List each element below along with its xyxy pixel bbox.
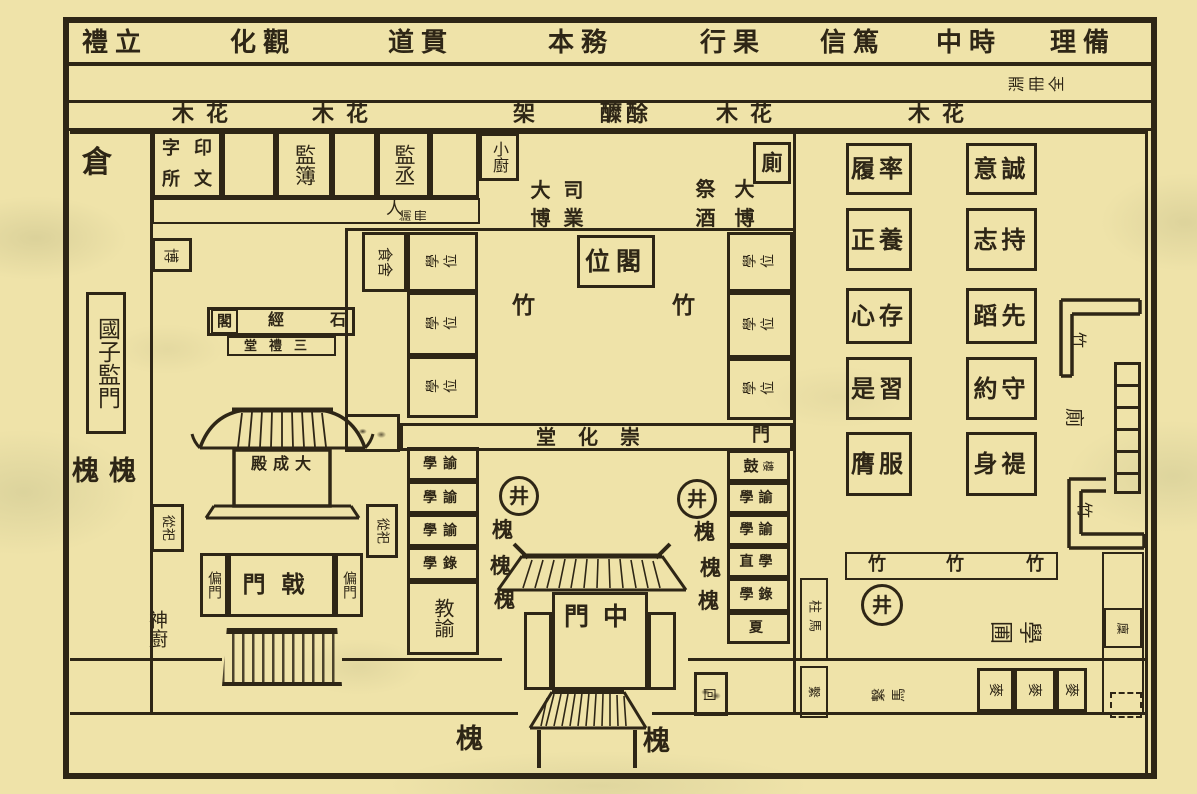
stone-classics-char: 閣	[217, 314, 232, 329]
stone-classics-char: 石	[330, 312, 346, 328]
staff-east-box: 學錄	[727, 578, 790, 612]
middle-gate-wing-east	[648, 612, 676, 690]
south-gate-post-west	[537, 730, 541, 768]
east-room-label: 學位	[742, 382, 778, 396]
assistant-label: 監丞	[393, 144, 414, 186]
west-room-box: 學位	[407, 292, 478, 356]
garden-plot-label: 學圃	[985, 618, 1043, 641]
director-char: 業	[564, 208, 584, 228]
flower-label: 木花	[908, 104, 976, 126]
attendant-shrine-east: 從祀	[366, 504, 398, 558]
hitching-area-label: 繫馬	[871, 689, 911, 703]
study-label: 志持	[974, 228, 1030, 252]
staff-west-box: 學諭	[407, 514, 479, 547]
maxim-du-xin: 信篤	[820, 30, 886, 56]
chancellor-char: 祭	[696, 179, 716, 199]
attendant-shrine-west: 從祀	[151, 504, 184, 552]
side-gate-west-box: 偏門	[200, 553, 228, 617]
west-room-box: 學位	[407, 232, 478, 292]
well-label: 井	[872, 595, 892, 615]
main-gate-box: 國子監門	[86, 292, 126, 434]
staff-east-box: 學諭	[727, 482, 790, 514]
east-room-label: 學位	[742, 318, 778, 332]
east-room-label: 學位	[742, 255, 778, 269]
small-granary-box: 廩	[1104, 608, 1142, 648]
pagoda-tree: 槐	[698, 591, 719, 612]
study-box-chengyi: 意誠	[966, 143, 1037, 195]
wall-south-1a	[70, 658, 222, 661]
bamboo-label: 竹	[946, 556, 964, 574]
side-gate-label: 偏門	[207, 571, 221, 599]
study-box-chizhi: 志持	[966, 208, 1037, 271]
bamboo-label: 竹	[1068, 332, 1092, 348]
middle-gate-roof	[492, 534, 692, 596]
pagoda-trees-west: 槐槐	[72, 458, 146, 485]
hitching-post-label: 柱馬	[808, 600, 821, 638]
staff-west-label: 學諭	[423, 491, 463, 505]
director-char: 博	[531, 208, 551, 228]
empty-room-box	[332, 131, 377, 198]
chancellor-char: 大	[735, 179, 755, 199]
wall-mid-divider	[793, 131, 796, 712]
staff-east-box: 直學	[727, 546, 790, 578]
study-label: 身禔	[974, 452, 1030, 476]
print-office-box: 字 印 所 文	[152, 131, 222, 198]
study-label: 膺服	[851, 452, 907, 476]
print-office-char: 文	[194, 171, 212, 189]
three-rites-label: 堂禮三	[244, 340, 319, 353]
flower-label: 木花	[716, 104, 784, 126]
staff-east-label: 學錄	[740, 588, 778, 602]
tablet-pavilion-label: 位閣	[585, 249, 647, 274]
stone-classics-ge-box: 閣	[211, 309, 238, 334]
study-label: 心存	[851, 304, 907, 328]
main-gate-label: 國子監門	[95, 317, 118, 409]
bamboo-label: 竹	[512, 295, 535, 318]
spirit-kitchen-label: 神廚	[147, 610, 166, 648]
bamboo-label: 竹	[672, 295, 695, 318]
well-label: 井	[687, 489, 707, 509]
chancellor-char: 博	[735, 208, 755, 228]
study-label: 正養	[851, 228, 907, 252]
east-room-box: 學位	[727, 358, 793, 420]
study-label: 蹈先	[974, 304, 1030, 328]
staff-west-label: 學諭	[423, 524, 463, 538]
well-west: 井	[499, 476, 539, 516]
drum-tower-small-label: 樓	[760, 461, 776, 472]
halberd-gate-label: 門戟	[243, 574, 321, 597]
east-cells-strip	[1114, 362, 1141, 494]
staff-east-label: 直學	[740, 555, 778, 569]
director-label-group: 大 司 博 業	[524, 176, 590, 232]
staff-west-box: 學諭	[407, 447, 479, 481]
attendant-shrine-label: 從祀	[376, 518, 389, 544]
flower-label: 木花	[312, 104, 380, 126]
maxim-guan-dao: 道貫	[388, 30, 454, 56]
maxim-guo-xing: 行果	[700, 30, 766, 56]
corner-structure	[1110, 692, 1142, 718]
study-label: 是習	[851, 377, 907, 401]
study-box-xishi: 是習	[846, 357, 912, 420]
east-room-box: 學位	[727, 292, 793, 358]
side-gate-label: 偏門	[342, 571, 356, 599]
shed-box: 麥	[1056, 668, 1087, 712]
bamboo-label: 竹	[868, 556, 886, 574]
west-room-box: 學位	[407, 356, 478, 418]
hitching-post-strip: 柱馬	[800, 578, 828, 660]
empty-room-box	[430, 131, 479, 198]
side-gate-east-box: 偏門	[335, 553, 363, 617]
food-hall-box: 食舍	[362, 232, 407, 292]
staff-west-box: 學錄	[407, 547, 479, 581]
shed-label: 麥	[986, 683, 1006, 697]
enclosure-box: 回	[694, 672, 728, 716]
small-granary-label: 廩	[1114, 622, 1131, 634]
chancellor-char: 酒	[696, 208, 716, 228]
tablet-pavilion-box: 位閣	[577, 235, 655, 288]
well-east: 井	[677, 479, 717, 519]
west-room-label: 學位	[425, 317, 461, 331]
pagoda-tree: 槐	[700, 558, 721, 579]
registrar-box: 監簿	[276, 131, 332, 198]
courtyard-north-line	[345, 228, 793, 231]
maxim-wu-ben: 本務	[548, 30, 614, 56]
study-label: 意誠	[974, 157, 1030, 181]
instructor-label: 教諭	[433, 598, 453, 638]
flower-label: 木花	[172, 104, 240, 126]
academy-map: 禮立 化觀 道貫 本務 行果 信篤 中時 理備 淵冊全 木花 木花 架 醾酴 木…	[0, 0, 1197, 794]
enclosure-label: 回	[701, 687, 720, 700]
attendant-shrine-label: 從祀	[161, 515, 174, 541]
three-rites-box: 堂禮三	[227, 336, 336, 356]
study-box-tishen: 身禔	[966, 432, 1037, 496]
instructor-box: 教諭	[407, 581, 479, 655]
staff-east-box: 學諭	[727, 514, 790, 546]
maxim-bei-li: 理備	[1050, 30, 1116, 56]
west-room-label: 學位	[425, 255, 461, 269]
study-label: 約守	[974, 377, 1030, 401]
screen-wall	[222, 628, 342, 686]
staff-west-label: 學諭	[423, 457, 463, 471]
stele-label: 博	[161, 247, 182, 262]
study-label: 履率	[851, 157, 907, 181]
corridor-note: 諭冊	[399, 210, 429, 222]
dacheng-hall-label: 殿成大	[238, 456, 330, 472]
pagoda-tree: 槐	[694, 522, 715, 543]
registrar-label: 監簿	[294, 144, 315, 186]
stone-classics-char: 經	[268, 312, 284, 328]
wall-south-2a	[70, 712, 518, 715]
maxim-li-li: 禮立	[82, 30, 148, 56]
hitching-post-strip-lower: 繫	[800, 666, 828, 718]
staff-west-label: 學錄	[423, 557, 463, 571]
shed-label: 麥	[1025, 683, 1045, 697]
study-box-yangzheng: 正養	[846, 208, 912, 271]
director-char: 大	[531, 180, 551, 200]
study-box-shouyue: 約守	[966, 357, 1037, 420]
empty-room-box	[222, 131, 276, 198]
print-office-char: 所	[162, 171, 180, 189]
study-box-fuying: 膺服	[846, 432, 912, 496]
wall-south-1b	[342, 658, 502, 661]
south-gate-post-east	[633, 730, 637, 768]
shed-label: 麥	[1062, 683, 1082, 697]
halberd-gate-box: 門戟	[228, 553, 335, 617]
wall-inner-east	[1145, 131, 1148, 775]
assistant-box: 監丞	[377, 131, 430, 198]
staff-east-label: 學諭	[740, 523, 778, 537]
maxim-shi-zhong: 中時	[936, 30, 1002, 56]
chancellor-label-group: 祭 大 酒 博	[686, 174, 764, 232]
director-char: 司	[564, 180, 584, 200]
drum-label: 鼓	[743, 459, 758, 474]
staff-west-box: 學諭	[407, 481, 479, 514]
drum-tower-box: 鼓 樓	[727, 450, 790, 482]
study-box-daoxian: 蹈先	[966, 288, 1037, 344]
south-gate-roof	[516, 684, 661, 734]
pagoda-tree-south: 槐	[643, 728, 670, 755]
chonghua-hall-label: 堂化崇	[536, 427, 662, 447]
hall-door-label: 門	[752, 427, 770, 445]
east-privy-label: 廁	[1062, 408, 1089, 427]
maxim-side-note: 淵冊全	[1008, 78, 1068, 94]
print-office-char: 字	[162, 140, 180, 158]
rose-trellis-label: 醾酴	[600, 104, 652, 126]
granary-label: 倉	[82, 148, 112, 178]
well-label: 井	[509, 486, 529, 506]
north-privy-label: 廁	[762, 153, 783, 174]
corridor	[152, 198, 480, 224]
shed-box: 麥	[977, 668, 1014, 712]
study-box-lvlu: 履率	[846, 143, 912, 195]
hitching-post-label-lower: 繫	[808, 686, 820, 698]
west-room-label: 學位	[425, 380, 461, 394]
wall-south-1c	[688, 658, 1145, 661]
east-room-box: 學位	[727, 232, 793, 292]
pagoda-tree-south: 槐	[456, 726, 483, 753]
well-south: 井	[861, 584, 903, 626]
study-box-cunxin: 心存	[846, 288, 912, 344]
stele-box: 博	[152, 238, 192, 272]
shed-box: 麥	[1014, 668, 1056, 712]
middle-gate-wing-west	[524, 612, 552, 690]
staff-east-box: 夏	[727, 612, 790, 644]
staff-east-label: 夏	[749, 621, 768, 635]
trellis-label: 架	[513, 104, 535, 126]
bamboo-label: 竹	[1074, 502, 1098, 518]
middle-gate-label: 門中	[564, 604, 642, 629]
food-hall-label: 食舍	[377, 247, 392, 277]
maxim-guan-hua: 化觀	[230, 30, 296, 56]
print-office-char: 印	[194, 140, 212, 158]
bamboo-label: 竹	[1026, 556, 1044, 574]
staff-east-label: 學諭	[740, 491, 778, 505]
small-kitchen-box: 小廚	[479, 133, 519, 181]
small-kitchen-label: 小廚	[491, 141, 507, 173]
